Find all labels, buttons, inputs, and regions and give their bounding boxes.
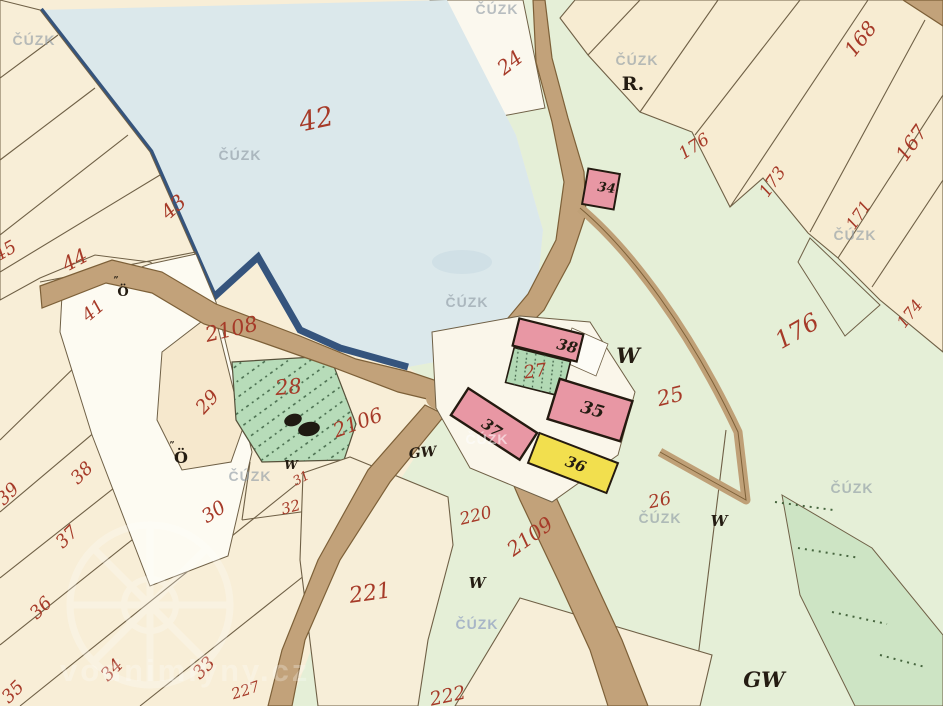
letter-o-umlaut-2: Ö (117, 283, 128, 300)
letter-gw-bottom: GW (743, 667, 787, 692)
parcel-label-28: 28 (273, 374, 303, 400)
cuzk-watermark: ČÚZK (831, 479, 874, 496)
ditto-ticks-1: ” (169, 441, 174, 451)
letter-o-umlaut-1: Ö (174, 447, 188, 467)
cuzk-watermark: ČÚZK (639, 509, 682, 526)
parcel-label-27: 27 (521, 359, 548, 383)
cuzk-watermark: ČÚZK (466, 430, 509, 447)
letter-r: R. (622, 73, 644, 95)
building-label-34: 34 (596, 180, 616, 197)
letter-w-26: W (711, 512, 730, 530)
cuzk-watermark: ČÚZK (219, 146, 262, 163)
map-canvas[interactable]: 42 43 44 45 41 39 38 37 36 35 34 33 168 … (0, 0, 943, 706)
cuzk-watermark: ČÚZK (834, 226, 877, 243)
site-watermark-text: vodnimlyny.cz (60, 653, 310, 688)
cuzk-watermark: ČÚZK (229, 467, 272, 484)
cuzk-watermark: ČÚZK (13, 31, 56, 48)
ditto-ticks-2: ” (113, 276, 118, 286)
cuzk-watermark: ČÚZK (476, 0, 519, 17)
pond-shade (432, 250, 492, 274)
cadastral-map: 42 43 44 45 41 39 38 37 36 35 34 33 168 … (0, 0, 943, 706)
letter-w-31: W (284, 458, 299, 472)
cuzk-watermark: ČÚZK (616, 51, 659, 68)
letter-gw-mid: GW (408, 444, 438, 462)
letter-w-25: W (616, 343, 642, 368)
cuzk-watermark: ČÚZK (456, 615, 499, 632)
letter-w-221: W (469, 574, 488, 592)
cuzk-watermark: ČÚZK (446, 293, 489, 310)
